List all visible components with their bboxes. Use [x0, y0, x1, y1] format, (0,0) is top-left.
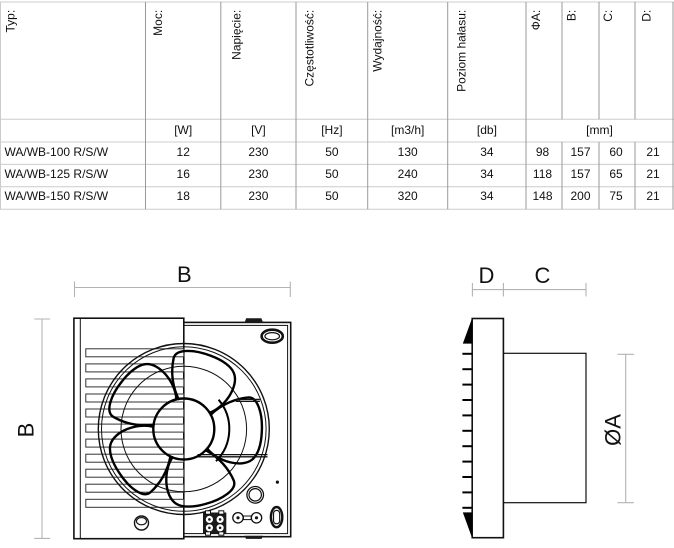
svg-text:C:: C:	[601, 10, 615, 22]
svg-text:B: B	[14, 423, 39, 438]
svg-text:21: 21	[646, 145, 660, 159]
svg-text:WA/WB-150 R/S/W: WA/WB-150 R/S/W	[5, 189, 109, 203]
svg-text:34: 34	[480, 189, 494, 203]
svg-text:Moc:: Moc:	[151, 10, 165, 36]
svg-text:320: 320	[398, 189, 418, 203]
svg-text:B:: B:	[565, 10, 579, 21]
svg-text:[Hz]: [Hz]	[321, 123, 342, 137]
svg-text:50: 50	[325, 189, 339, 203]
svg-text:[W]: [W]	[174, 123, 192, 137]
svg-text:Napięcie:: Napięcie:	[230, 10, 244, 60]
svg-text:D: D	[479, 263, 495, 288]
svg-text:148: 148	[532, 189, 552, 203]
svg-text:[m3/h]: [m3/h]	[391, 123, 424, 137]
svg-text:118: 118	[533, 167, 552, 181]
svg-text:130: 130	[398, 145, 418, 159]
svg-text:60: 60	[609, 145, 623, 159]
svg-text:12: 12	[177, 145, 191, 159]
svg-text:65: 65	[609, 167, 623, 181]
svg-text:Poziom hałasu:: Poziom hałasu:	[455, 10, 469, 92]
svg-text:16: 16	[177, 167, 191, 181]
svg-text:50: 50	[325, 167, 339, 181]
svg-text:75: 75	[609, 189, 623, 203]
svg-text:98: 98	[536, 145, 550, 159]
svg-text:Częstotliwość:: Częstotliwość:	[303, 10, 317, 87]
svg-text:[V]: [V]	[251, 123, 266, 137]
svg-text:200: 200	[570, 189, 590, 203]
svg-text:Typ:: Typ:	[4, 10, 18, 33]
svg-text:230: 230	[248, 145, 268, 159]
svg-text:34: 34	[480, 145, 494, 159]
svg-text:240: 240	[398, 167, 418, 181]
svg-text:21: 21	[646, 189, 660, 203]
svg-text:ФA:: ФA:	[529, 10, 543, 30]
svg-text:[mm]: [mm]	[586, 123, 613, 137]
svg-text:230: 230	[248, 167, 268, 181]
svg-text:C: C	[535, 263, 551, 288]
svg-text:230: 230	[248, 189, 268, 203]
svg-text:ØA: ØA	[601, 414, 626, 446]
svg-text:B: B	[177, 262, 192, 287]
svg-text:34: 34	[480, 167, 494, 181]
svg-text:WA/WB-125 R/S/W: WA/WB-125 R/S/W	[5, 167, 109, 181]
svg-text:Wydajność:: Wydajność:	[371, 10, 385, 72]
svg-text:WA/WB-100 R/S/W: WA/WB-100 R/S/W	[5, 145, 109, 159]
svg-text:D:: D:	[640, 10, 654, 22]
svg-text:157: 157	[570, 167, 590, 181]
svg-text:50: 50	[325, 145, 339, 159]
svg-text:21: 21	[646, 167, 660, 181]
svg-text:157: 157	[570, 145, 590, 159]
svg-text:18: 18	[177, 189, 191, 203]
svg-text:[db]: [db]	[477, 123, 497, 137]
